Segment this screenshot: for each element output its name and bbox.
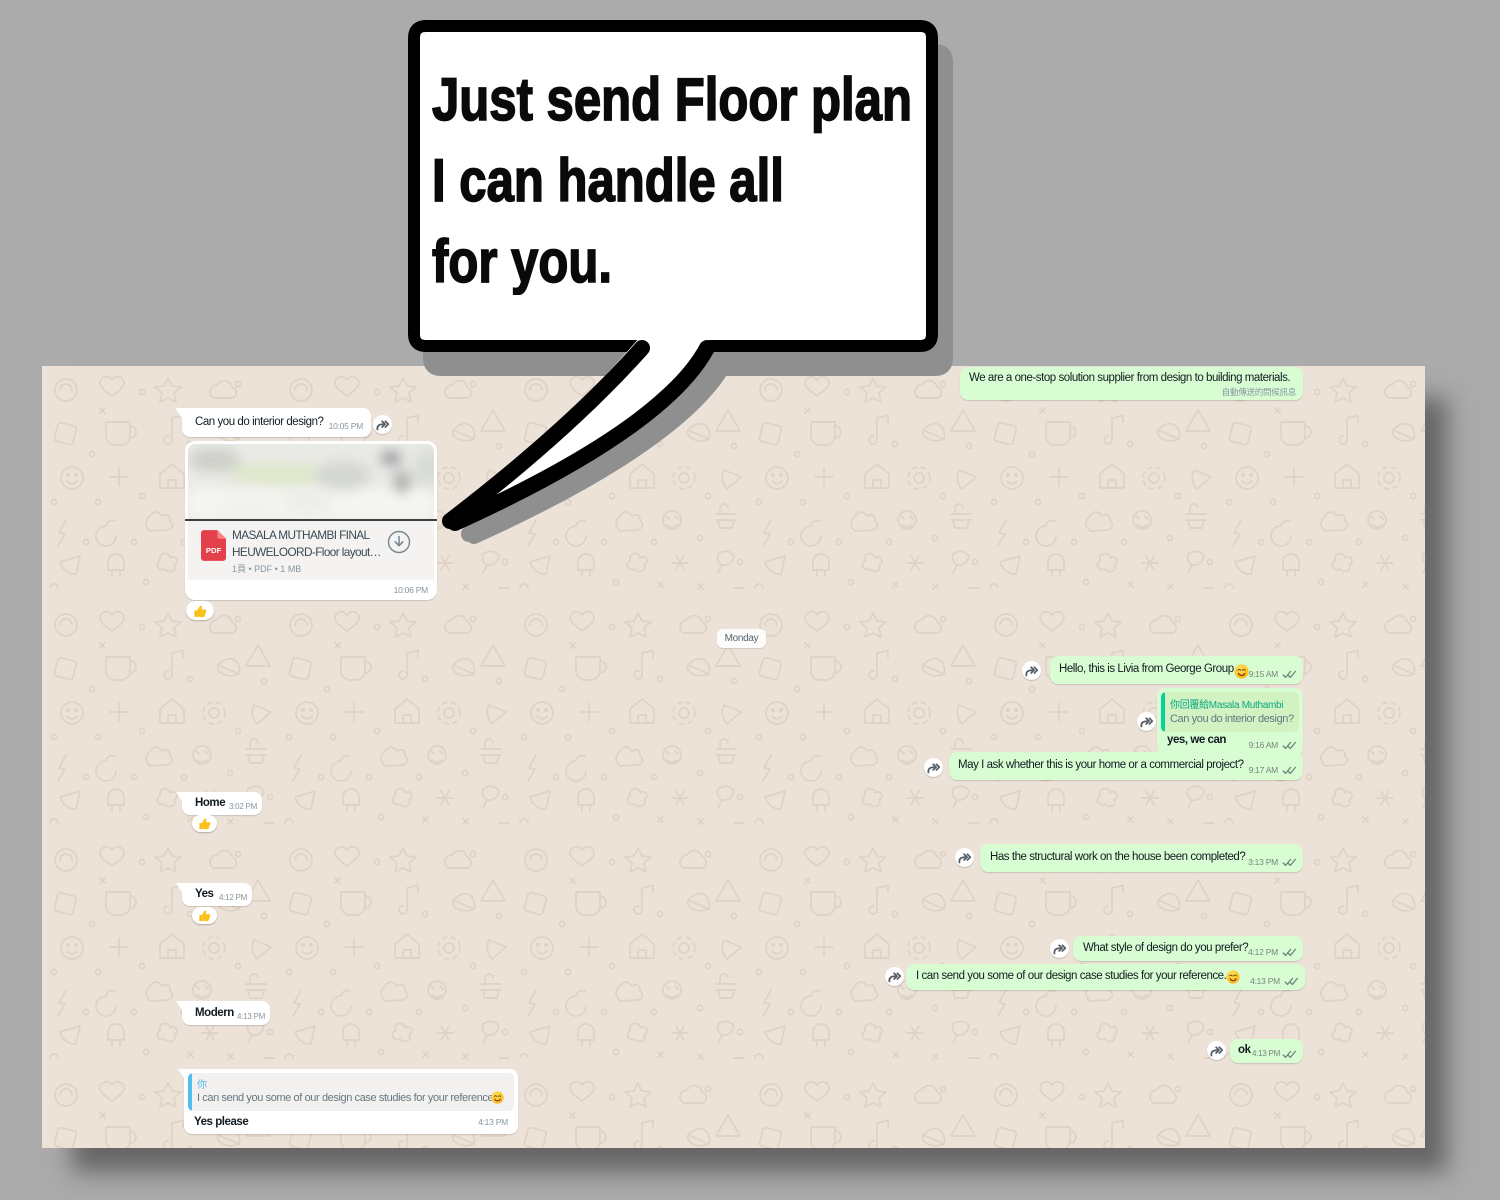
svg-text:PDF: PDF — [206, 546, 222, 555]
